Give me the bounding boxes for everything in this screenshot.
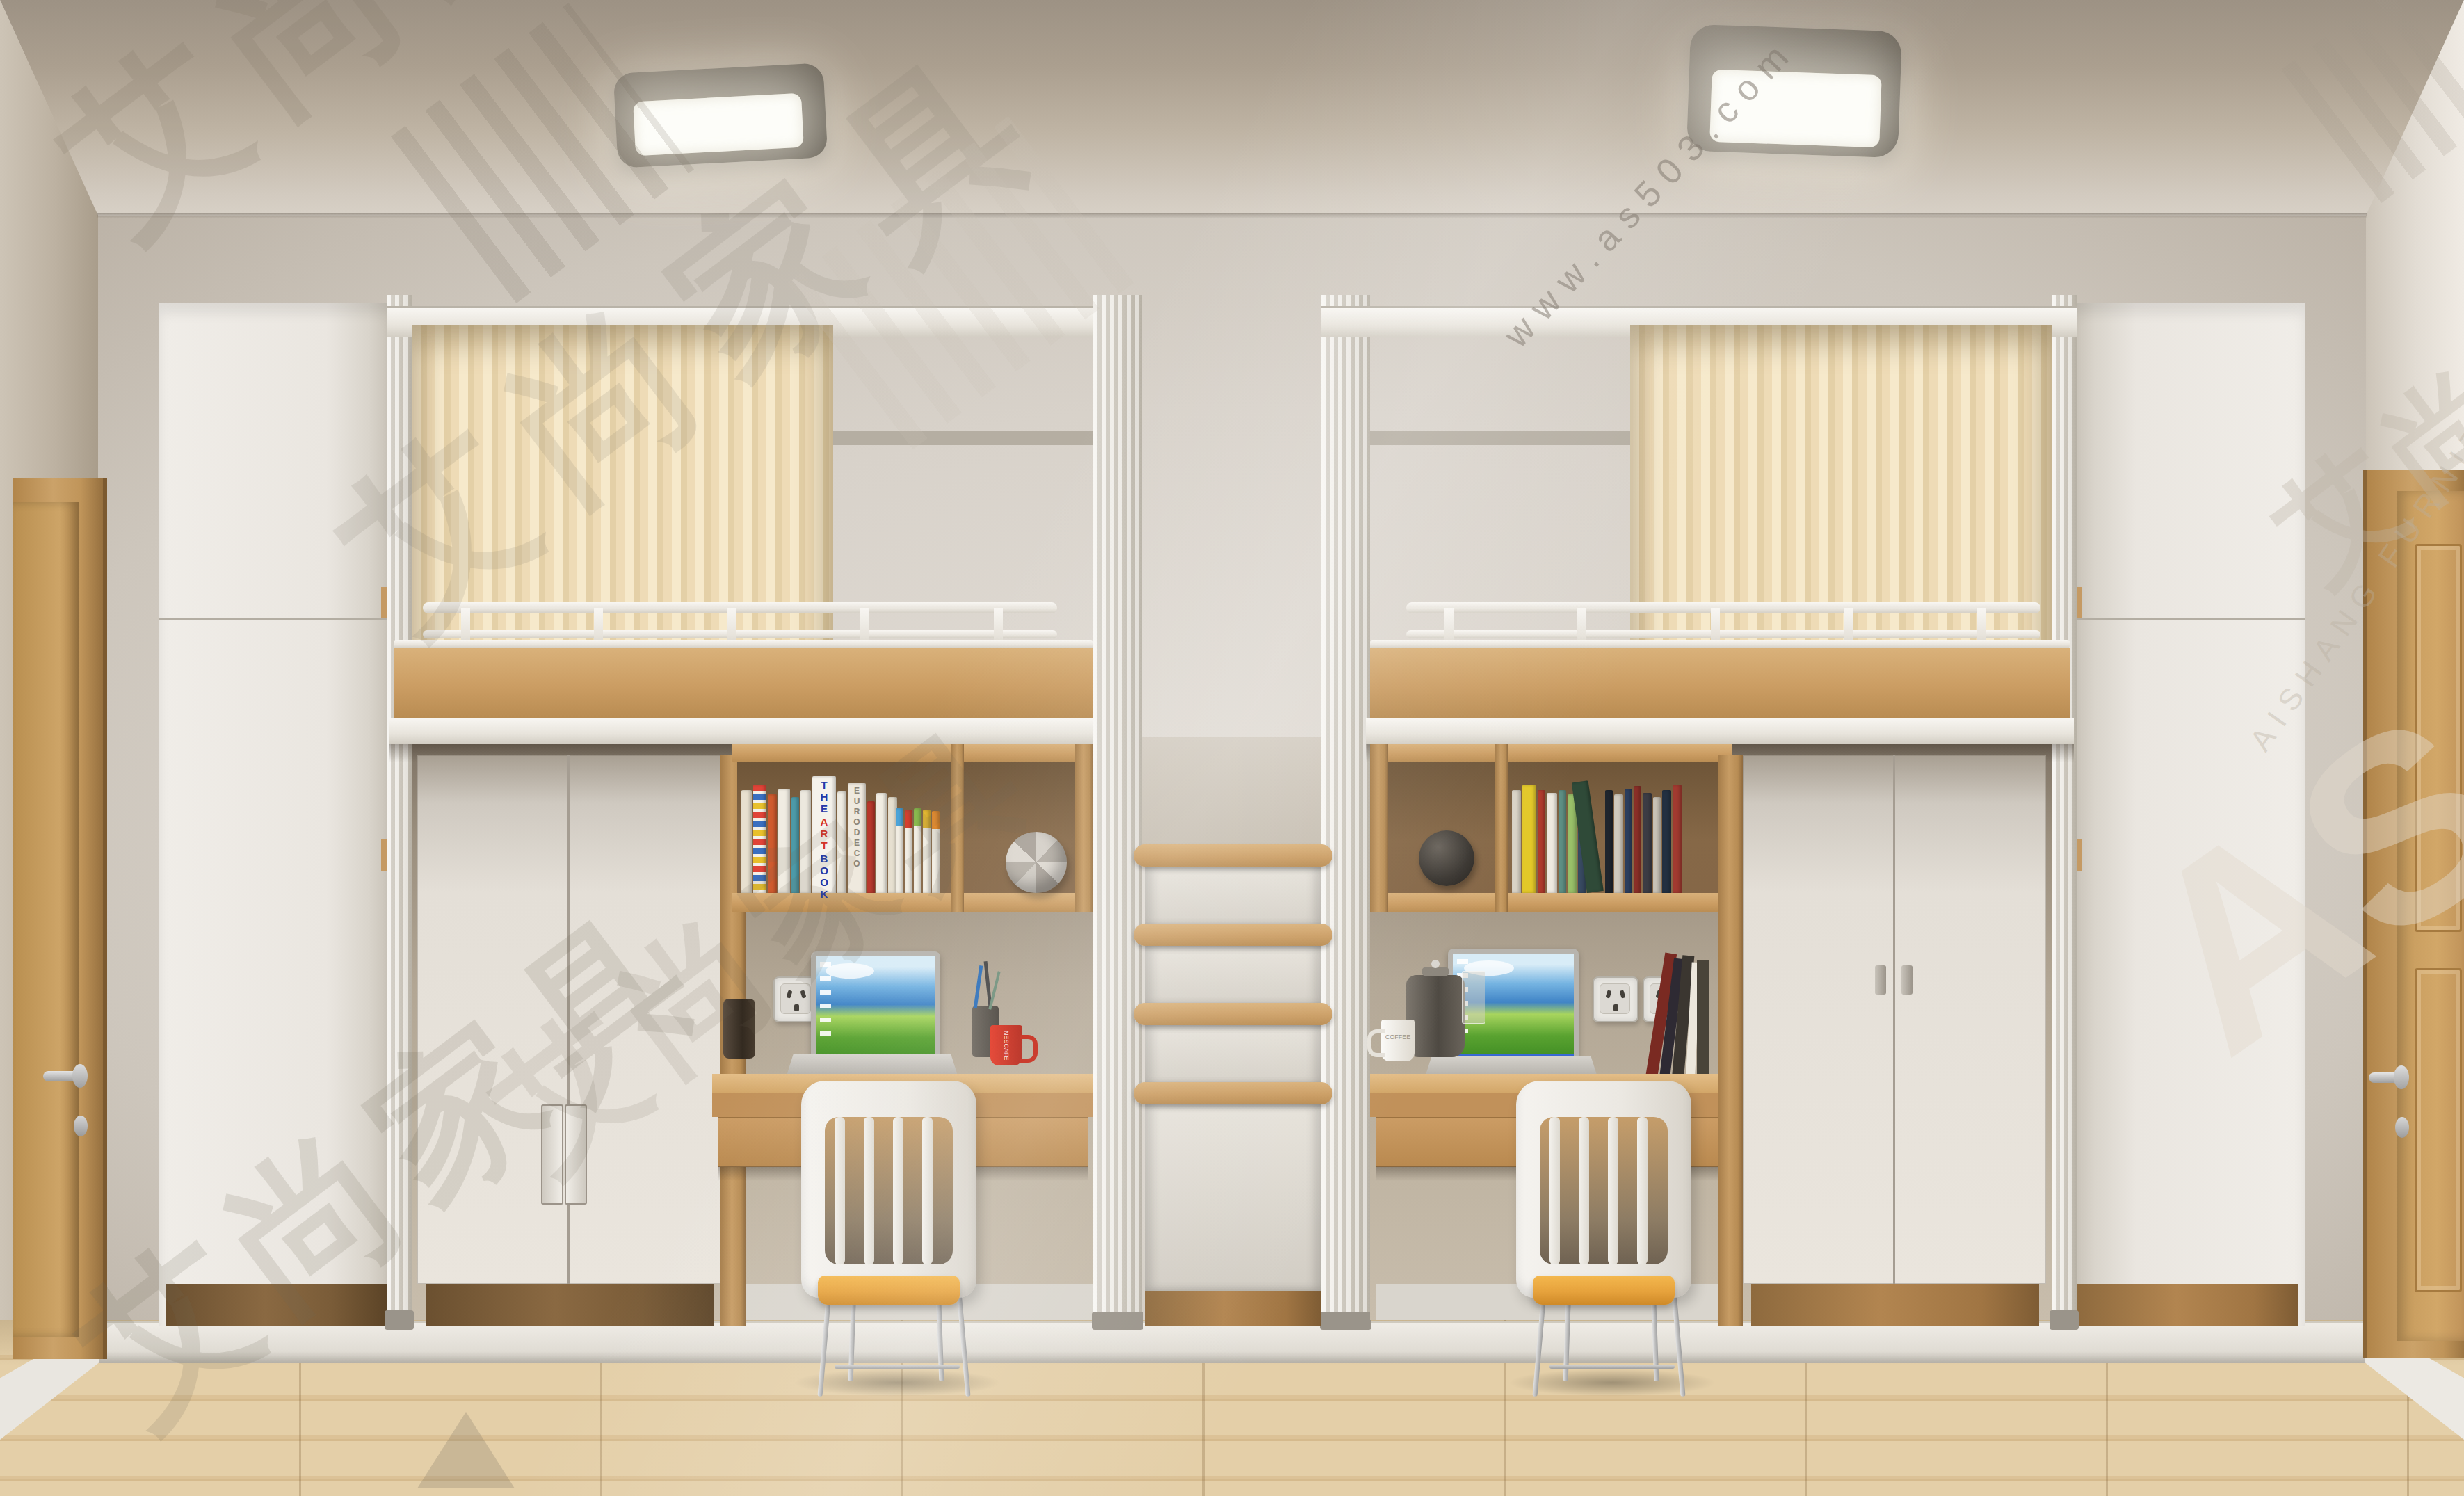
ladder-tread-2 [1134,924,1332,946]
ladder-step-front-4 [1145,1104,1321,1291]
book-spine [1559,790,1566,893]
book-spine [896,808,903,893]
left-bed-back-rail [832,431,1093,445]
glass-cup [1462,971,1485,1024]
ladder-post-right [1321,295,1370,1328]
book-spine [768,794,777,893]
book-spine [1614,794,1623,893]
chair-slat [864,1117,874,1264]
right-tall-cabinet-seam [2071,618,2305,620]
right-shelf-side-left [1370,744,1388,912]
left-tall-cabinet [159,303,392,1326]
dark-cup [723,999,755,1059]
book-spine [1538,790,1545,893]
ladder-tread-1 [1134,844,1332,867]
book-spine [1673,785,1682,893]
book-spine [837,791,846,893]
left-shelf-side-right [1075,744,1093,912]
right-wardrobe-handle-r [1901,965,1913,995]
ceiling-light-left-panel [633,93,804,156]
book-spine [1512,790,1521,893]
right-wardrobe-plinth [1751,1284,2039,1326]
chair-seat [818,1276,960,1305]
guardrail-mid-tube [1406,630,2040,638]
chair-slat [922,1117,933,1264]
chair-crossbar [1549,1365,1675,1369]
book-spine [778,789,790,893]
book-title-art: ART [819,816,830,851]
ladder-base [1145,1291,1321,1326]
right-desk-side-panel [1718,755,1743,1326]
right-door-handle-rose [2394,1065,2409,1089]
book-spine [1697,960,1709,1078]
chair-slat [1579,1117,1589,1264]
white-mug: COFFEE [1381,1020,1415,1061]
left-bed-board-toplip [394,640,1093,648]
left-bed-frame-band [389,718,1097,744]
red-mug-text: NESCAFE [1003,1031,1010,1061]
red-mug: NESCAFE [990,1025,1022,1065]
right-shelf-bottom [1370,893,1732,912]
chair-back [801,1081,976,1298]
right-shelf-divider [1495,744,1508,912]
right-shelf-ornament-sphere [1419,830,1474,886]
ceiling-wall-shadow [97,213,2367,218]
left-door [13,502,79,1337]
power-socket [1593,976,1638,1022]
right-tall-cabinet-plinth [2077,1284,2298,1326]
book-spine-eurodeco: EURODECO [848,783,866,893]
chair-slat [893,1117,903,1264]
ladder-post-left [1093,295,1142,1328]
left-bed-board [394,648,1093,718]
watermark-triangle [417,1412,515,1488]
chair-back [1516,1081,1691,1298]
book-spine [1605,790,1613,893]
ceiling-light-right-panel [1709,70,1881,147]
red-mug-handle [1020,1035,1038,1063]
book-spine-the-art-book: THE ART BOOK [812,776,836,893]
chair-crossbar [835,1365,960,1369]
right-bed-board [1370,648,2070,718]
laptop-screen [811,951,940,1068]
guardrail-top-tube [1406,602,2040,613]
chair-slat [1608,1117,1618,1264]
book-spine [1662,790,1671,893]
left-wardrobe-handle-r [565,1104,587,1205]
book-spine [932,811,940,893]
right-bed-post-outer [2052,295,2077,1314]
right-door-keyhole [2395,1117,2409,1138]
book-spine [905,810,912,893]
left-wardrobe-seam [567,755,570,1284]
ladder-tread-4 [1134,1082,1332,1104]
right-door-panel-top [2415,544,2462,932]
socket-hole [794,1004,799,1011]
chair-slat [1637,1117,1648,1264]
leaning-books-on-desk [1645,950,1712,1078]
kettle [1406,975,1465,1057]
ladder-wall-panel [1142,737,1321,847]
ladder-tread-3 [1134,1003,1332,1025]
right-shelf-top [1370,744,1732,762]
book-title-book: BOOK [819,853,830,900]
left-wardrobe-plinth [426,1284,714,1326]
left-door-handle-rose [72,1064,88,1088]
left-shelf-thin-books [896,807,947,893]
book-spine [753,785,766,893]
right-door-panel-bottom [2415,968,2462,1292]
book-spine [741,790,752,893]
left-wardrobe-handle-l [541,1104,563,1205]
right-wardrobe-seam [1893,755,1895,1284]
guardrail-top-tube [423,602,1057,613]
book-spine [923,810,931,893]
chair-back-cutout [825,1117,953,1264]
ladder-step-front-2 [1145,946,1321,1006]
right-shelf-books [1512,775,1712,893]
ladder-post-left-foot [1092,1312,1143,1330]
book-spine [791,797,799,893]
book-spine [1653,797,1661,893]
white-mug-handle [1367,1029,1385,1057]
book-spine [1643,793,1652,893]
chair-back-cutout [1540,1117,1668,1264]
kettle-knob [1431,960,1440,968]
baseboard [97,1321,2367,1363]
right-bed-back-rail [1370,431,1648,445]
left-shelf-divider [951,744,964,912]
book-spine [1522,785,1536,893]
book-title-eurodeco: EURODECO [853,786,861,869]
book-spine [800,790,811,893]
right-tall-cabinet [2071,303,2305,1326]
room-render: THE ART BOOK EURODECO [0,0,2464,1496]
book-spine [1634,786,1641,893]
left-door-keyhole [74,1116,88,1136]
ceiling [0,0,2464,220]
chair-slat [835,1117,845,1264]
kettle-lid [1422,967,1449,976]
book-spine [1625,789,1632,893]
right-bed-board-toplip [1370,640,2070,648]
right-bed-post-outer-foot [2050,1310,2079,1330]
left-bed-post-outer-foot [385,1310,414,1330]
chair-slat [1549,1117,1560,1264]
left-shelf-bottom [732,893,1093,912]
laptop-wallpaper-cloud [826,963,874,979]
guardrail-mid-tube [423,630,1057,638]
ladder-step-front-3 [1145,1025,1321,1085]
chair-seat [1533,1276,1675,1305]
book-title-the: THE [819,779,830,814]
right-wardrobe-handle-l [1875,965,1886,995]
socket-hole [1613,1004,1618,1011]
laptop-desktop-icons [820,962,831,1038]
left-tall-cabinet-plinth [166,1284,387,1326]
ladder-step-front-1 [1145,867,1321,926]
book-spine [1547,793,1557,893]
white-mug-text: COFFEE [1385,1033,1411,1040]
right-bed-frame-band [1366,718,2074,744]
book-spine [867,801,875,893]
book-spine [876,793,887,893]
left-bed-post-outer [387,295,412,1314]
left-shelf-ornament [1006,832,1067,893]
book-spine [914,808,921,893]
left-tall-cabinet-seam [159,618,392,620]
ladder-post-right-foot [1320,1312,1371,1330]
left-shelf-top [732,744,1093,762]
